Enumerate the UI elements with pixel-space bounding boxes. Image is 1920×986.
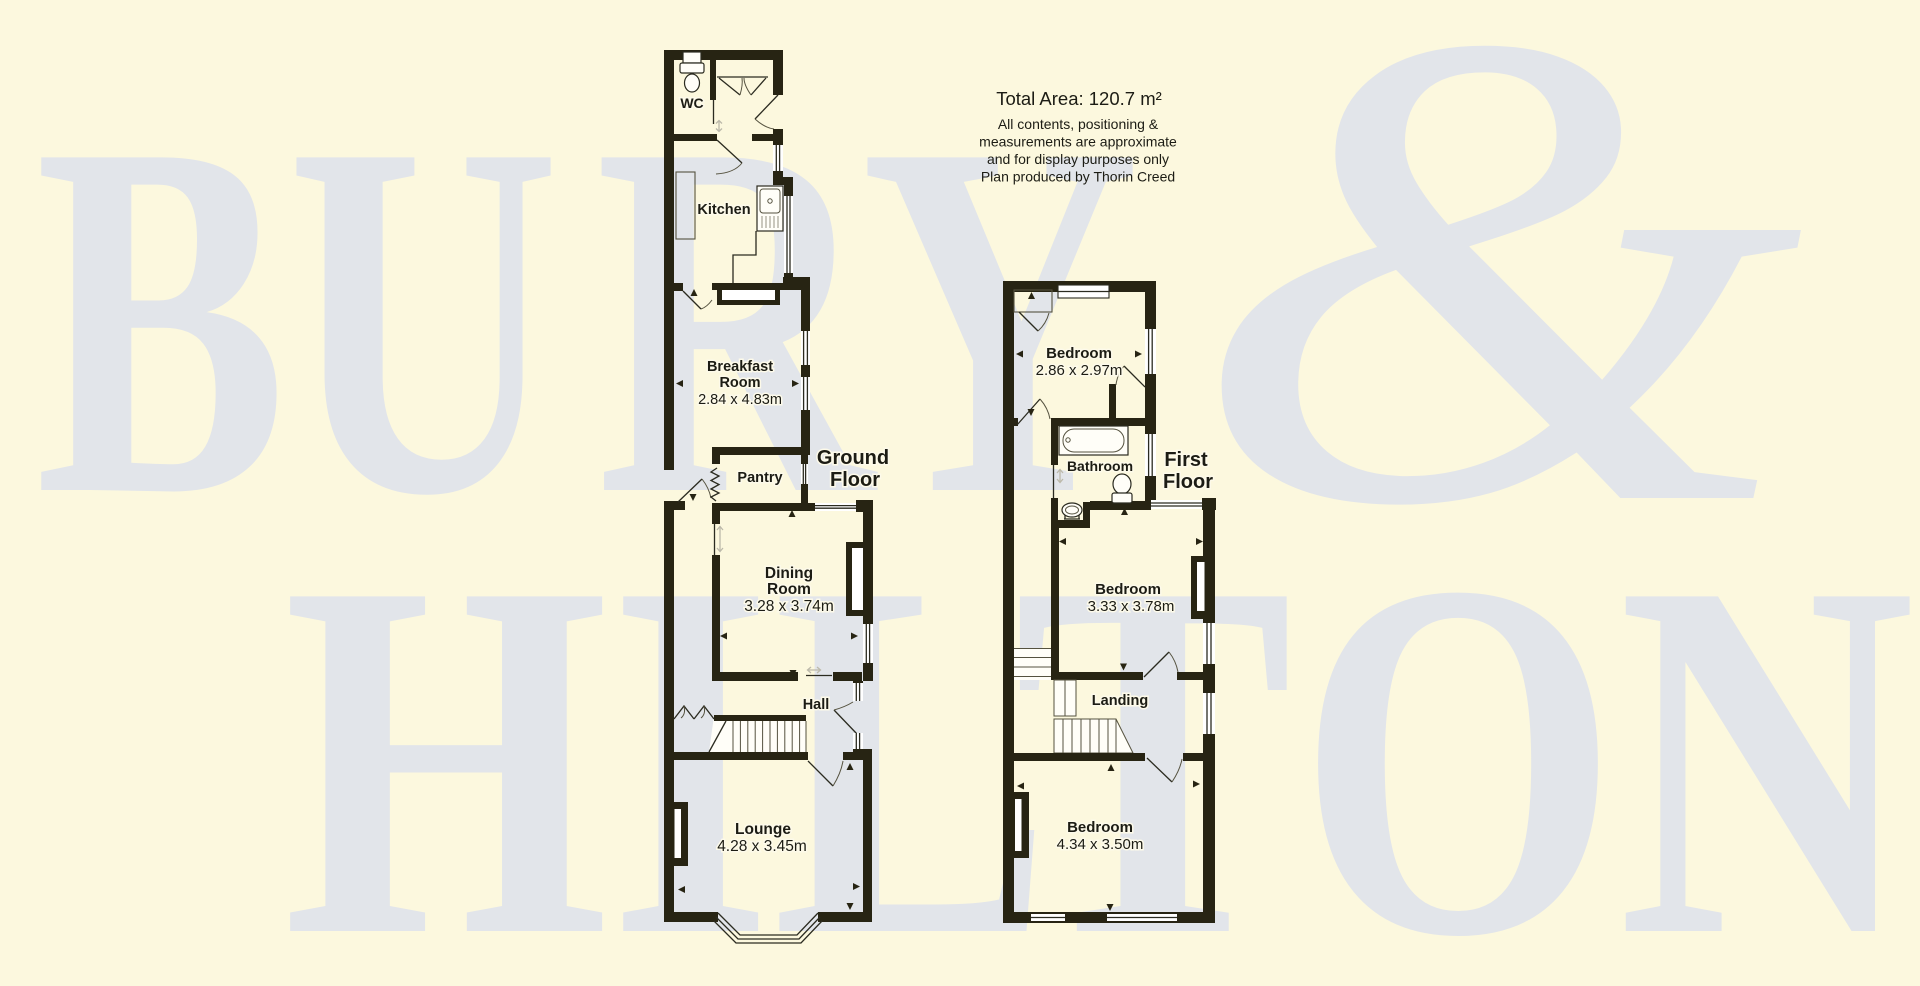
- svg-text:Bedroom: Bedroom: [1067, 819, 1133, 836]
- svg-text:Lounge: Lounge: [735, 821, 791, 838]
- svg-text:3.33 x 3.78m: 3.33 x 3.78m: [1088, 598, 1175, 615]
- svg-text:Kitchen: Kitchen: [697, 202, 750, 218]
- svg-text:Bedroom: Bedroom: [1095, 581, 1161, 598]
- svg-text:First: First: [1164, 449, 1208, 471]
- svg-text:All contents, positioning &: All contents, positioning &: [998, 116, 1159, 132]
- svg-text:WC: WC: [680, 95, 703, 111]
- svg-text:Plan produced by Thorin Creed: Plan produced by Thorin Creed: [981, 169, 1175, 185]
- svg-text:Floor: Floor: [1163, 471, 1213, 493]
- svg-text:Dining: Dining: [765, 565, 813, 582]
- svg-text:and for display purposes only: and for display purposes only: [987, 151, 1169, 167]
- svg-text:measurements are approximate: measurements are approximate: [979, 134, 1177, 150]
- svg-text:Hall: Hall: [803, 697, 830, 713]
- svg-text:Landing: Landing: [1092, 693, 1148, 709]
- svg-text:2.86 x 2.97m: 2.86 x 2.97m: [1036, 362, 1123, 379]
- svg-text:Breakfast: Breakfast: [707, 359, 773, 375]
- svg-text:Ground: Ground: [817, 447, 889, 469]
- svg-text:Room: Room: [767, 581, 811, 598]
- svg-text:3.28 x 3.74m: 3.28 x 3.74m: [744, 598, 834, 615]
- svg-text:2.84 x 4.83m: 2.84 x 4.83m: [698, 392, 782, 408]
- svg-text:Room: Room: [719, 375, 760, 391]
- svg-text:Bathroom: Bathroom: [1067, 458, 1133, 474]
- svg-text:Bedroom: Bedroom: [1046, 345, 1112, 362]
- svg-text:4.34 x 3.50m: 4.34 x 3.50m: [1057, 836, 1144, 853]
- svg-text:Floor: Floor: [830, 469, 880, 491]
- svg-text:ON: ON: [1298, 476, 1915, 986]
- svg-text:Pantry: Pantry: [737, 470, 782, 486]
- svg-text:Total Area: 120.7 m²: Total Area: 120.7 m²: [996, 88, 1162, 109]
- svg-text:4.28 x 3.45m: 4.28 x 3.45m: [717, 838, 807, 855]
